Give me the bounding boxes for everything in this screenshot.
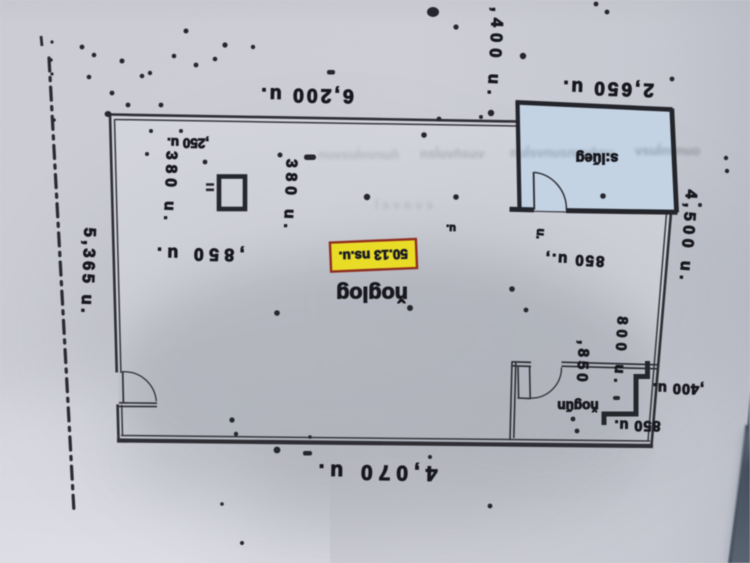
svg-text:nuvsuĺnvnuň: nuvsuĺnvnuň (318, 147, 399, 162)
svg-text:,850 u.: ,850 u. (151, 244, 244, 266)
svg-text:380 u.: 380 u. (160, 151, 180, 226)
svg-text:850 u.,: 850 u., (543, 249, 605, 269)
svg-text:nsĺuvňsuv: nsĺuvňsuv (420, 146, 485, 161)
svg-text:ňogűn: ňogűn (557, 399, 598, 414)
svg-text:u.: u. (534, 228, 549, 240)
svg-text:,400 u.: ,400 u. (652, 380, 704, 397)
svg-text:850 u.: 850 u. (613, 417, 660, 434)
svg-text:2,650 u.: 2,650 u. (560, 76, 654, 100)
svg-text:,850: ,850 (573, 340, 592, 386)
svg-text:,250 u.: ,250 u. (167, 135, 209, 151)
svg-text:ňoglog: ňoglog (336, 282, 408, 306)
svg-text:380 u.: 380 u. (280, 159, 300, 234)
svg-text:vsuĺnvnuo: vsuĺnvnuo (635, 143, 700, 158)
svg-text:6,200 u.: 6,200 u. (258, 83, 354, 107)
svg-text:5,365 u.: 5,365 u. (77, 227, 98, 316)
svg-text:50.13 ns.u.: 50.13 ns.u. (338, 246, 408, 264)
svg-text:u.: u. (446, 222, 456, 234)
svg-text:s:lűeg: s:lűeg (576, 150, 619, 166)
svg-text:4,070 u.: 4,070 u. (312, 459, 437, 484)
